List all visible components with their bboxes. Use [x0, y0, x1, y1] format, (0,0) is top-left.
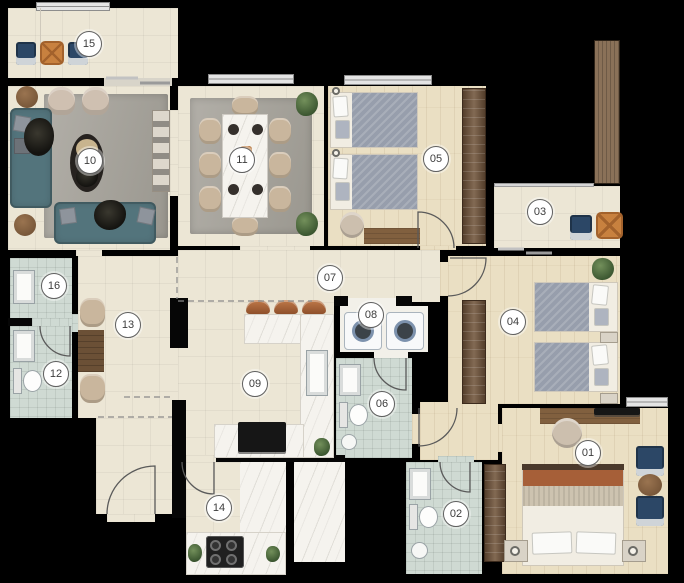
toilet-bowl [349, 404, 368, 426]
dining-chair [269, 152, 291, 178]
balcony-15-door-opening [104, 78, 172, 86]
dining-chair [232, 96, 258, 116]
sofa-pillow [137, 207, 156, 226]
side-table [596, 212, 623, 239]
room-label-14: 14 [206, 495, 232, 521]
kitchen-sink [306, 350, 328, 396]
dining-chair [199, 186, 221, 212]
toilet-bowl [23, 370, 42, 392]
room-label-12: 12 [43, 361, 69, 387]
dining-chair [232, 216, 258, 236]
room-label-10: 10 [77, 148, 103, 174]
bedroom-01-doorway [498, 424, 502, 452]
tv [238, 422, 286, 452]
room-label-08: 08 [358, 302, 384, 328]
stove-burner [210, 554, 221, 565]
hallway-07-floor [178, 250, 440, 302]
lounge-chair [636, 496, 664, 526]
media-console [152, 110, 170, 192]
kitchen-nook-marble [294, 462, 345, 562]
room-label-01: 01 [575, 440, 601, 466]
window [208, 74, 294, 84]
toilet-bowl [419, 506, 438, 528]
stove-burner [226, 554, 237, 565]
bed-texture-band [523, 486, 623, 506]
bed-pillow [591, 344, 609, 366]
bedside-lamp [510, 546, 520, 556]
bed-accent-runner [523, 470, 623, 486]
toilet-tank [409, 504, 418, 530]
room-label-16: 16 [41, 273, 67, 299]
bed-pillow [332, 158, 348, 180]
bedroom-05-doorway [420, 246, 456, 250]
desk-chair [340, 212, 364, 238]
wood-feature-panel [594, 40, 620, 184]
bed-pillow [532, 531, 573, 554]
round-side-table [638, 474, 662, 496]
bar-stool [274, 300, 298, 314]
room-label-07: 07 [317, 265, 343, 291]
entrance-doorway [107, 514, 155, 522]
window [626, 397, 668, 407]
wall-segment [172, 400, 186, 518]
round-side-table [14, 214, 36, 236]
washing-machine [386, 312, 424, 350]
bed-pillow [335, 120, 350, 139]
washer-door [394, 320, 416, 342]
bedside-lamp [628, 546, 638, 556]
window [36, 2, 110, 11]
hall-chair [80, 298, 105, 327]
nightstand [600, 332, 618, 343]
desk [364, 228, 420, 244]
bathroom-sink [339, 364, 361, 396]
bed-pillow [332, 96, 348, 118]
plate [228, 124, 239, 135]
bar-stool [302, 300, 326, 314]
room-label-04: 04 [500, 309, 526, 335]
bar-stool [246, 300, 270, 314]
dining-chair [269, 186, 291, 212]
room-label-03: 03 [527, 199, 553, 225]
wall-segment [8, 318, 32, 326]
kitchen-14-doorway [186, 455, 216, 462]
bed-pillow [594, 308, 609, 326]
dining-chair [199, 118, 221, 144]
bed-blanket [352, 155, 417, 209]
toilet-tank [339, 402, 348, 428]
bathroom-02-doorway [438, 456, 474, 462]
bedroom-04-doorway [440, 262, 448, 296]
balcony-railing [494, 183, 594, 187]
room-label-06: 06 [369, 391, 395, 417]
room-label-05: 05 [423, 146, 449, 172]
side-table [40, 41, 64, 65]
bed-pillow [335, 182, 350, 201]
bathroom-12-doorway [32, 318, 72, 326]
nightstand [600, 393, 618, 404]
plate [252, 184, 263, 195]
bedside-lamp [332, 149, 340, 157]
room-label-13: 13 [115, 312, 141, 338]
room-label-15: 15 [76, 31, 102, 57]
living-to-hall-opening [76, 250, 102, 256]
bed-blanket [535, 283, 589, 331]
entry-hall-floor [96, 418, 172, 514]
plate [252, 124, 263, 135]
room-label-02: 02 [443, 501, 469, 527]
bed-pillow [594, 368, 609, 386]
plate [228, 184, 239, 195]
bed-blanket [352, 93, 417, 147]
window [344, 75, 432, 85]
lounge-chair [570, 215, 592, 240]
hall-chair [80, 374, 105, 403]
wardrobe [462, 88, 486, 244]
bathroom-06-doorway [374, 352, 408, 358]
dining-chair [199, 152, 221, 178]
bedside-lamp [332, 87, 340, 95]
armchair [82, 87, 109, 115]
bed-pillow [576, 531, 617, 554]
hall-table [78, 330, 104, 372]
room-label-11: 11 [229, 147, 255, 173]
bed-blanket [535, 343, 589, 391]
floor-plan: 01 02 03 04 05 06 07 08 09 10 11 12 13 1… [0, 0, 684, 583]
stove-burner [210, 540, 221, 551]
wall-segment [170, 298, 188, 348]
bathroom-sink [13, 270, 35, 304]
bathroom-sink [409, 468, 431, 500]
plant [592, 258, 614, 280]
living-dining-opening [170, 110, 178, 196]
wardrobe [484, 464, 506, 562]
shower-drain [341, 434, 357, 450]
shower-drain [411, 542, 428, 559]
dining-to-hallway-opening [240, 246, 310, 250]
bed-pillow [591, 284, 609, 306]
tv [594, 408, 640, 415]
wall-segment [396, 296, 412, 306]
stove-burner [226, 540, 237, 551]
room-label-09: 09 [242, 371, 268, 397]
round-side-table [16, 86, 38, 108]
bathroom-sink [13, 330, 35, 362]
armchair [48, 87, 75, 115]
toilet-tank [13, 368, 22, 394]
lounge-chair [636, 446, 664, 476]
bedroom-hall-floor [420, 402, 498, 460]
wall-segment [334, 296, 348, 306]
lounge-chair [16, 42, 36, 65]
sofa-pillow [59, 207, 77, 225]
dining-chair [269, 118, 291, 144]
bedroom-hall-doorway [412, 414, 420, 444]
wardrobe [462, 300, 486, 404]
